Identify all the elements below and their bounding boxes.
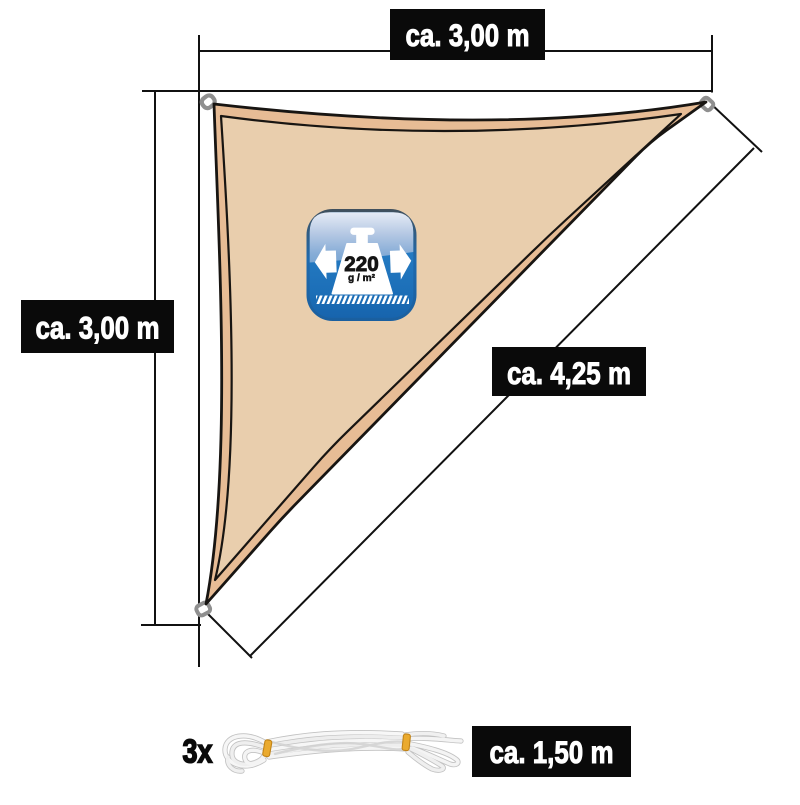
svg-text:g / m²: g / m² [348, 273, 376, 284]
svg-text:ca. 4,25 m: ca. 4,25 m [507, 355, 631, 391]
svg-text:ca. 3,00 m: ca. 3,00 m [406, 17, 530, 53]
svg-text:ca. 1,50 m: ca. 1,50 m [490, 734, 614, 770]
svg-text:3x: 3x [183, 734, 213, 771]
svg-text:ca. 3,00 m: ca. 3,00 m [36, 310, 160, 346]
